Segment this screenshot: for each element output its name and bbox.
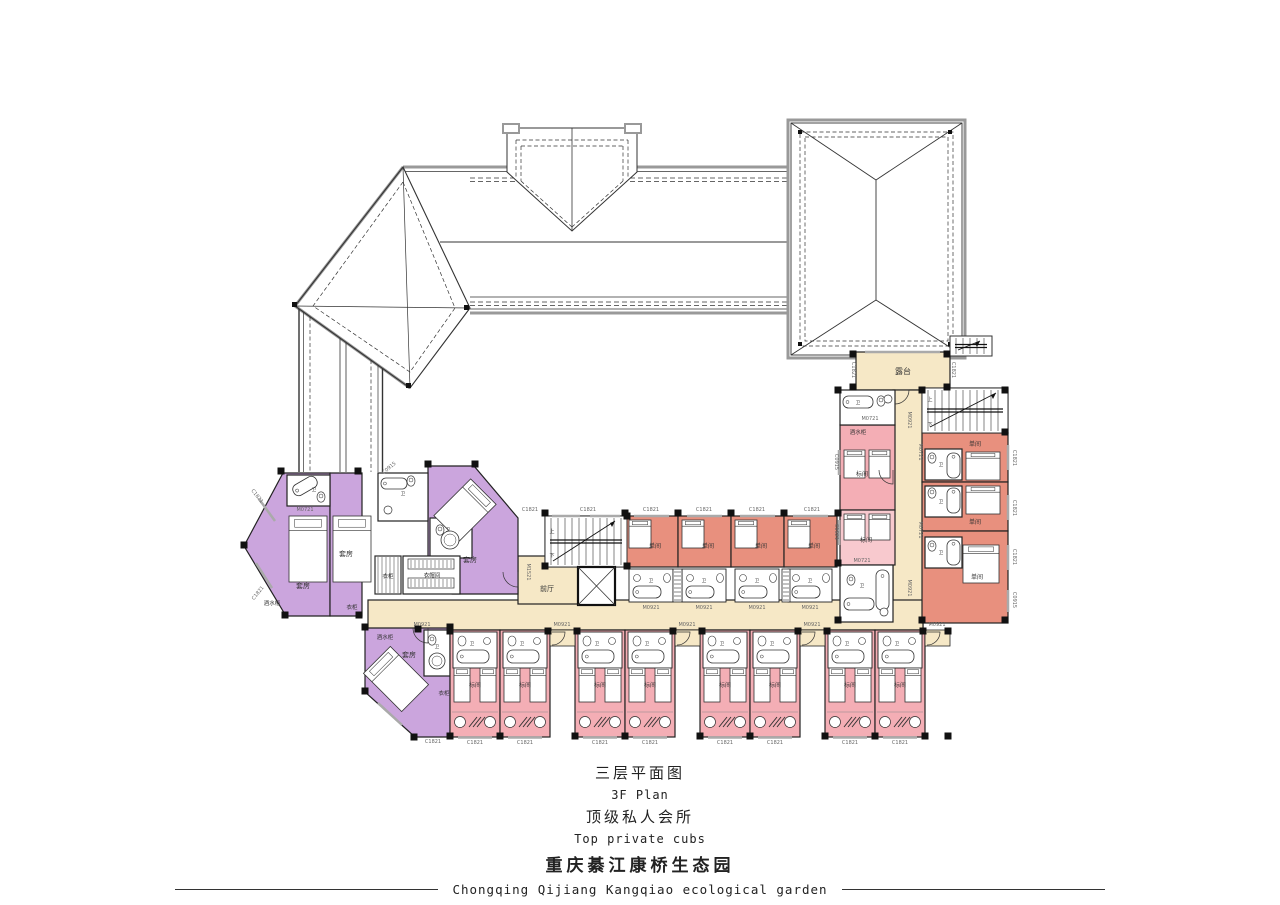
column (356, 612, 363, 619)
bed-icon (504, 668, 520, 702)
svg-text:单间: 单间 (649, 542, 661, 550)
column (282, 612, 289, 619)
svg-text:C1821: C1821 (249, 488, 264, 504)
svg-text:卫: 卫 (939, 462, 944, 468)
svg-text:标间: 标间 (769, 681, 781, 689)
bathtub-icon (381, 478, 407, 489)
bed-icon (655, 668, 671, 702)
svg-text:C1821: C1821 (1011, 549, 1017, 565)
svg-text:C1821: C1821 (850, 362, 856, 378)
svg-text:卫: 卫 (720, 641, 725, 647)
column (697, 733, 704, 740)
bed-icon (780, 668, 796, 702)
svg-text:M0921: M0921 (678, 622, 695, 628)
svg-text:衣柜: 衣柜 (346, 603, 358, 611)
svg-text:卫: 卫 (860, 583, 865, 589)
bed-icon (454, 668, 470, 702)
svg-text:标间: 标间 (856, 470, 868, 478)
svg-text:M0721: M0721 (917, 521, 923, 538)
stairs-icon (545, 516, 627, 567)
svg-text:套房: 套房 (339, 549, 353, 558)
bed-icon (682, 520, 704, 548)
project-name-rule: Chongqing Qijiang Kangqiao ecological ga… (175, 882, 1105, 897)
column (542, 563, 549, 570)
column (425, 461, 432, 468)
bed-icon (704, 668, 720, 702)
column (472, 461, 479, 468)
svg-text:卫: 卫 (845, 641, 850, 647)
svg-text:C1821: C1821 (517, 740, 533, 746)
svg-text:C1821: C1821 (592, 740, 608, 746)
svg-text:标间: 标间 (860, 536, 872, 544)
svg-text:标间: 标间 (844, 681, 856, 689)
svg-text:C1821: C1821 (804, 507, 820, 513)
svg-text:卫: 卫 (595, 641, 600, 647)
project-name-en: Chongqing Qijiang Kangqiao ecological ga… (438, 882, 841, 897)
bed-icon (754, 668, 770, 702)
column (1002, 617, 1009, 624)
bathtub-icon (707, 650, 739, 663)
column (622, 733, 629, 740)
svg-text:单间: 单间 (702, 542, 714, 550)
column (624, 563, 631, 570)
toilet-icon (428, 635, 436, 645)
sink-icon (884, 395, 892, 403)
svg-text:C1821: C1821 (642, 740, 658, 746)
column (497, 733, 504, 740)
column (919, 617, 926, 624)
svg-text:C0915: C0915 (833, 454, 839, 470)
bathtub-icon (947, 488, 960, 513)
column (411, 734, 418, 741)
svg-text:上: 上 (549, 528, 554, 535)
floor-plan-sheet: 卫标间C1821卫标间C1821卫标间C1821卫标间C1821卫标间C1821… (0, 0, 1280, 905)
bathtub-icon (947, 453, 960, 478)
toilet-icon (317, 492, 325, 502)
bathtub-icon (947, 540, 960, 565)
bed-icon (480, 668, 496, 702)
svg-text:卫: 卫 (470, 641, 475, 647)
svg-text:套房: 套房 (402, 650, 416, 659)
svg-text:C1821: C1821 (522, 507, 538, 513)
bed-icon (966, 452, 1000, 480)
svg-text:卫: 卫 (312, 487, 317, 493)
elevator-icon (578, 567, 615, 605)
svg-text:M0721: M0721 (917, 443, 923, 460)
bed-icon (579, 668, 595, 702)
bed-icon (629, 668, 645, 702)
rule-left (175, 889, 438, 890)
column (572, 733, 579, 740)
svg-text:卫: 卫 (808, 578, 813, 584)
svg-text:卫: 卫 (520, 641, 525, 647)
title-block: 三层平面图 3F Plan 顶级私人会所 Top private cubs 重庆… (0, 762, 1280, 897)
bed-icon (869, 514, 890, 540)
bed-icon (730, 668, 746, 702)
toilet-icon (877, 396, 885, 406)
column (872, 733, 879, 740)
svg-text:M0921: M0921 (906, 411, 912, 428)
bed-icon (905, 668, 921, 702)
svg-text:露台: 露台 (895, 366, 911, 376)
column (795, 628, 802, 635)
svg-text:酒水柜: 酒水柜 (850, 428, 867, 436)
svg-text:C1821: C1821 (950, 362, 956, 378)
svg-text:C1821: C1821 (833, 524, 839, 540)
column (922, 733, 929, 740)
svg-text:M0921: M0921 (928, 622, 945, 628)
bed-icon (289, 516, 327, 582)
svg-text:下: 下 (549, 553, 554, 559)
column (699, 628, 706, 635)
svg-text:C1821: C1821 (643, 507, 659, 513)
svg-text:单间: 单间 (969, 440, 981, 448)
column (355, 468, 362, 475)
svg-text:前厅: 前厅 (540, 584, 554, 593)
svg-text:卫: 卫 (645, 641, 650, 647)
stairs-icon (950, 336, 992, 356)
column (945, 628, 952, 635)
bed-icon (966, 486, 1000, 514)
round-tub-icon (441, 531, 459, 549)
svg-text:衣柜: 衣柜 (382, 572, 394, 580)
svg-text:单间: 单间 (808, 542, 820, 550)
svg-text:标间: 标间 (594, 681, 606, 689)
round-tub-icon (429, 653, 445, 669)
svg-text:C1821: C1821 (892, 740, 908, 746)
svg-text:C1821: C1821 (467, 740, 483, 746)
bathtub-icon (844, 598, 874, 610)
svg-text:C0915: C0915 (1011, 592, 1017, 608)
floor-plan (241, 336, 1009, 741)
bathtub-icon (739, 586, 767, 598)
club-name-zh: 顶级私人会所 (0, 806, 1280, 827)
sink-icon (384, 506, 392, 514)
bed-icon (629, 520, 651, 548)
svg-text:C1821: C1821 (717, 740, 733, 746)
svg-text:C1821: C1821 (251, 585, 266, 601)
bathtub-icon (633, 586, 661, 598)
svg-text:卫: 卫 (702, 578, 707, 584)
svg-text:M0921: M0921 (553, 622, 570, 628)
column (447, 733, 454, 740)
column (241, 542, 248, 549)
column (447, 624, 454, 631)
svg-text:卫: 卫 (446, 527, 451, 533)
bathtub-icon (757, 650, 789, 663)
column (670, 628, 677, 635)
bed-icon (530, 668, 546, 702)
plan-title-zh: 三层平面图 (0, 762, 1280, 783)
svg-text:单间: 单间 (755, 542, 767, 550)
svg-text:C1821: C1821 (580, 507, 596, 513)
svg-text:标间: 标间 (719, 681, 731, 689)
column (850, 351, 857, 358)
svg-text:套房: 套房 (296, 581, 310, 590)
bed-icon (788, 520, 810, 548)
svg-text:卫: 卫 (649, 578, 654, 584)
svg-text:标间: 标间 (894, 681, 906, 689)
bathtub-icon (792, 586, 820, 598)
svg-text:M0921: M0921 (801, 605, 818, 611)
bathtub-icon (876, 570, 889, 610)
column (945, 733, 952, 740)
column (824, 628, 831, 635)
svg-text:卫: 卫 (895, 641, 900, 647)
column (1002, 387, 1009, 394)
svg-text:M0921: M0921 (906, 579, 912, 596)
svg-text:卫: 卫 (939, 550, 944, 556)
bathtub-icon (457, 650, 489, 663)
svg-text:卫: 卫 (755, 578, 760, 584)
svg-text:标间: 标间 (469, 681, 481, 689)
column (822, 733, 829, 740)
column (850, 384, 857, 391)
column (278, 468, 285, 475)
column (835, 617, 842, 624)
project-name-zh: 重庆綦江康桥生态园 (0, 851, 1280, 876)
column (835, 560, 842, 567)
svg-text:单间: 单间 (971, 573, 983, 581)
column (944, 351, 951, 358)
column (920, 628, 927, 635)
column (362, 624, 369, 631)
bathtub-icon (832, 650, 864, 663)
svg-text:下: 下 (927, 422, 932, 428)
svg-text:C1821: C1821 (425, 739, 441, 745)
column (675, 510, 682, 517)
bathtub-icon (507, 650, 539, 663)
bed-icon (855, 668, 871, 702)
svg-text:标间: 标间 (519, 681, 531, 689)
club-name-en: Top private cubs (0, 832, 1280, 846)
svg-text:M0921: M0921 (695, 605, 712, 611)
column (1002, 429, 1009, 436)
bed-icon (829, 668, 845, 702)
toilet-icon (928, 541, 936, 551)
column (574, 628, 581, 635)
svg-text:卫: 卫 (770, 641, 775, 647)
svg-text:卫: 卫 (435, 644, 440, 650)
rule-right (842, 889, 1105, 890)
svg-text:上: 上 (927, 396, 932, 403)
svg-text:卫: 卫 (401, 491, 406, 497)
svg-text:M0721: M0721 (296, 507, 313, 513)
svg-text:M0921: M0921 (413, 622, 430, 628)
toilet-icon (436, 525, 444, 535)
svg-text:C1821: C1821 (767, 740, 783, 746)
svg-text:M0921: M0921 (642, 605, 659, 611)
toilet-icon (928, 453, 936, 463)
svg-text:酒水柜: 酒水柜 (264, 599, 281, 607)
bed-icon (605, 668, 621, 702)
bathtub-icon (632, 650, 664, 663)
bathtub-icon (582, 650, 614, 663)
svg-text:卫: 卫 (939, 499, 944, 505)
svg-text:C1821: C1821 (842, 740, 858, 746)
svg-text:C1821: C1821 (1011, 500, 1017, 516)
svg-text:酒水柜: 酒水柜 (377, 633, 394, 641)
svg-text:M1521: M1521 (525, 563, 531, 580)
bed-icon (735, 520, 757, 548)
bathtub-icon (882, 650, 914, 663)
column (542, 510, 549, 517)
svg-text:M0721: M0721 (853, 558, 870, 564)
bathtub-icon (686, 586, 714, 598)
column (747, 733, 754, 740)
toilet-icon (928, 488, 936, 498)
column (728, 510, 735, 517)
svg-text:标间: 标间 (644, 681, 656, 689)
toilet-icon (847, 575, 855, 585)
svg-text:衣帽间: 衣帽间 (424, 571, 441, 579)
column (362, 688, 369, 695)
svg-text:套房: 套房 (463, 555, 477, 564)
plan-title-en: 3F Plan (0, 788, 1280, 802)
column (835, 510, 842, 517)
svg-text:M0921: M0921 (803, 622, 820, 628)
svg-text:单间: 单间 (969, 518, 981, 526)
column (919, 387, 926, 394)
svg-text:衣柜: 衣柜 (438, 689, 450, 697)
svg-text:M0921: M0921 (748, 605, 765, 611)
svg-text:M0721: M0721 (861, 416, 878, 422)
column (545, 628, 552, 635)
bed-icon (879, 668, 895, 702)
bed-icon (333, 516, 371, 582)
svg-text:卫: 卫 (856, 400, 861, 406)
column (944, 384, 951, 391)
sink-icon (880, 608, 888, 616)
toilet-icon (407, 476, 415, 486)
svg-text:C1821: C1821 (749, 507, 765, 513)
column (624, 513, 631, 520)
svg-text:C1821: C1821 (696, 507, 712, 513)
stairs-icon (922, 388, 1008, 433)
column (835, 387, 842, 394)
column (781, 510, 788, 517)
svg-text:C1821: C1821 (1011, 450, 1017, 466)
